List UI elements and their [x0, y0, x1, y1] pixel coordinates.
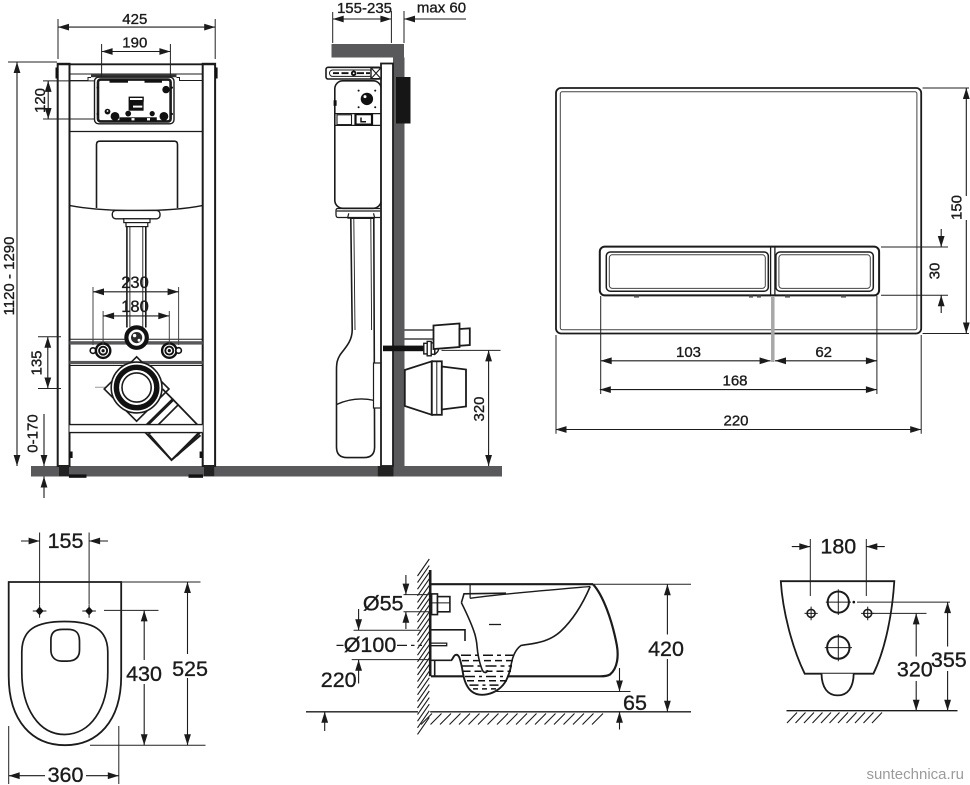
svg-text:30: 30 [927, 263, 944, 280]
svg-text:320: 320 [897, 658, 933, 682]
svg-text:155: 155 [48, 529, 84, 553]
svg-text:220: 220 [723, 412, 748, 429]
svg-text:120: 120 [32, 88, 49, 113]
svg-text:Ø55: Ø55 [363, 592, 404, 616]
svg-text:230: 230 [121, 274, 149, 292]
svg-text:103: 103 [676, 344, 701, 361]
svg-text:62: 62 [815, 344, 832, 361]
svg-text:525: 525 [172, 657, 208, 681]
svg-text:430: 430 [126, 662, 162, 686]
svg-text:1120 - 1290: 1120 - 1290 [1, 237, 18, 316]
svg-text:425: 425 [122, 11, 147, 28]
svg-text:420: 420 [648, 637, 684, 661]
svg-text:Ø100: Ø100 [344, 633, 397, 657]
svg-text:0-170: 0-170 [25, 414, 42, 452]
svg-text:360: 360 [48, 763, 84, 785]
svg-text:150: 150 [949, 195, 966, 220]
svg-text:180: 180 [820, 535, 856, 559]
svg-text:max 60: max 60 [417, 0, 466, 16]
svg-text:180: 180 [121, 298, 149, 316]
svg-text:320: 320 [471, 396, 488, 421]
svg-text:190: 190 [122, 34, 147, 51]
svg-text:355: 355 [931, 648, 967, 672]
svg-text:220: 220 [321, 668, 357, 692]
svg-text:suntechnica.ru: suntechnica.ru [866, 766, 964, 783]
svg-text:65: 65 [623, 691, 647, 715]
svg-text:155-235: 155-235 [337, 0, 392, 17]
svg-text:135: 135 [29, 350, 46, 375]
svg-text:168: 168 [722, 373, 747, 390]
